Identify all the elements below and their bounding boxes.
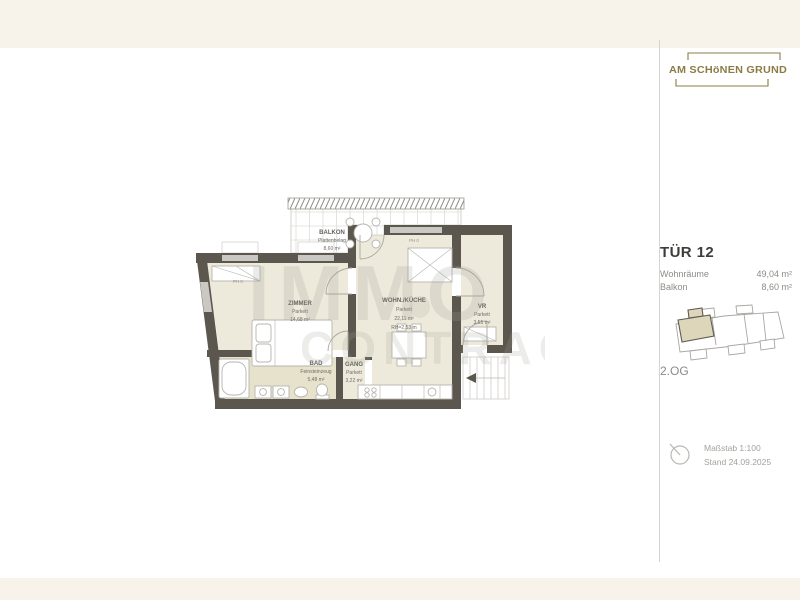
floor-plan-drawing: BALKON Plattenbelag 8,60 m² ZIMMER Parke… <box>175 190 545 435</box>
bathtub-symbol <box>219 359 249 398</box>
north-compass-icon <box>666 440 694 468</box>
unit-title: TÜR 12 <box>660 244 792 261</box>
unit-info: TÜR 12 Wohnräume 49,04 m² Balkon 8,60 m² <box>660 244 792 294</box>
svg-text:3,22 m²: 3,22 m² <box>346 378 363 384</box>
unit-row-label: Wohnräume <box>660 268 709 281</box>
svg-text:CONTRACT: CONTRACT <box>300 322 545 374</box>
sink-symbol <box>295 387 308 397</box>
scale-block: Maßstab 1:100 Stand 24.09.2025 <box>666 440 771 468</box>
logo-frame-top <box>688 53 780 60</box>
logo-frame-bottom <box>676 79 768 86</box>
logo-text: AM SCHöNEN GRUND <box>669 64 787 76</box>
balcony-railing <box>288 198 464 209</box>
unit-row-balkon: Balkon 8,60 m² <box>660 281 792 294</box>
key-plan <box>666 296 792 368</box>
scale-text: Maßstab 1:100 <box>704 443 771 453</box>
svg-text:Plattenbelag: Plattenbelag <box>318 238 346 244</box>
ph-annotation: PH 0 <box>233 279 243 284</box>
ph-annotation: PH 0 <box>409 238 419 243</box>
floorplan-page: { "branding": { "logo_text": "AM SCHöNEN… <box>0 0 800 600</box>
svg-text:BALKON: BALKON <box>319 230 345 236</box>
unit-row-value: 8,60 m² <box>761 281 792 294</box>
floor-plan: BALKON Plattenbelag 8,60 m² ZIMMER Parke… <box>175 190 545 435</box>
kitchen-counter-symbol <box>358 385 452 399</box>
scale-texts: Maßstab 1:100 Stand 24.09.2025 <box>704 440 771 467</box>
date-text: Stand 24.09.2025 <box>704 457 771 467</box>
brand-logo: AM SCHöNEN GRUND <box>660 48 796 94</box>
floor-label: 2.OG <box>660 364 689 378</box>
svg-text:5,48 m²: 5,48 m² <box>308 377 325 383</box>
sidebar-divider <box>659 40 660 562</box>
unit-row-value: 49,04 m² <box>756 268 792 281</box>
unit-row-wohnraeume: Wohnräume 49,04 m² <box>660 268 792 281</box>
unit-row-label: Balkon <box>660 281 688 294</box>
